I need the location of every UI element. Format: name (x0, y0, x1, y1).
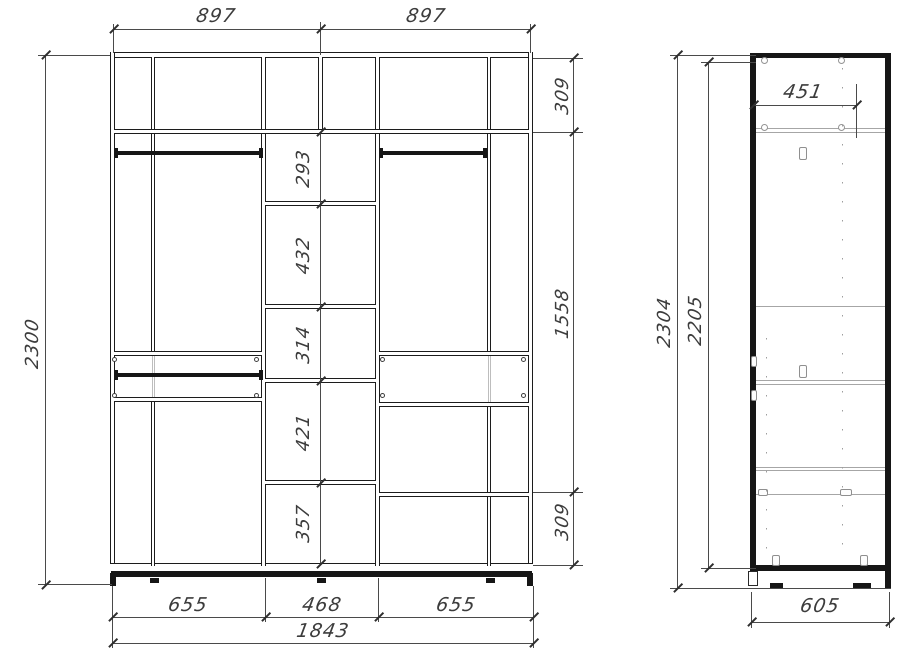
handle-fitting (799, 147, 807, 160)
extension-line (670, 55, 756, 56)
side-shelf-line (756, 306, 885, 307)
dimension-line (753, 105, 857, 106)
hinge-fitting (751, 356, 757, 367)
handle-fitting (799, 365, 807, 378)
dim-height-panel: 2205 (685, 278, 703, 361)
edge-fitting (858, 54, 863, 58)
wardrobe-technical-drawing: 897 897 2300 309 1558 309 293 432 314 42… (0, 0, 917, 659)
cam-lock-icon (761, 57, 768, 64)
shelf-pin-holes (766, 338, 767, 562)
floor-line (670, 588, 891, 589)
dimension-line (677, 55, 678, 588)
foot-pin (860, 555, 868, 566)
side-shelf-line (756, 128, 885, 133)
foot-pin (772, 555, 780, 566)
cam-lock-icon (838, 57, 845, 64)
edge-fitting (771, 54, 776, 58)
dim-depth-total: 605 (783, 595, 857, 617)
side-view: 451 2304 2205 605 (0, 0, 917, 659)
side-shelf-line (756, 467, 885, 471)
dim-height-overall: 2304 (654, 280, 672, 363)
side-shelf-line (756, 380, 885, 385)
side-front-foot (748, 571, 758, 586)
dimension-line (751, 622, 890, 623)
extension-line (856, 84, 857, 138)
side-shelf-line (756, 494, 885, 495)
dimension-line (708, 62, 709, 568)
dim-depth-upper: 451 (771, 81, 835, 103)
hinge-fitting (751, 390, 757, 401)
side-back-edge (885, 53, 891, 588)
cam-lock-icon (761, 124, 768, 131)
shelf-pin-holes (842, 68, 843, 562)
